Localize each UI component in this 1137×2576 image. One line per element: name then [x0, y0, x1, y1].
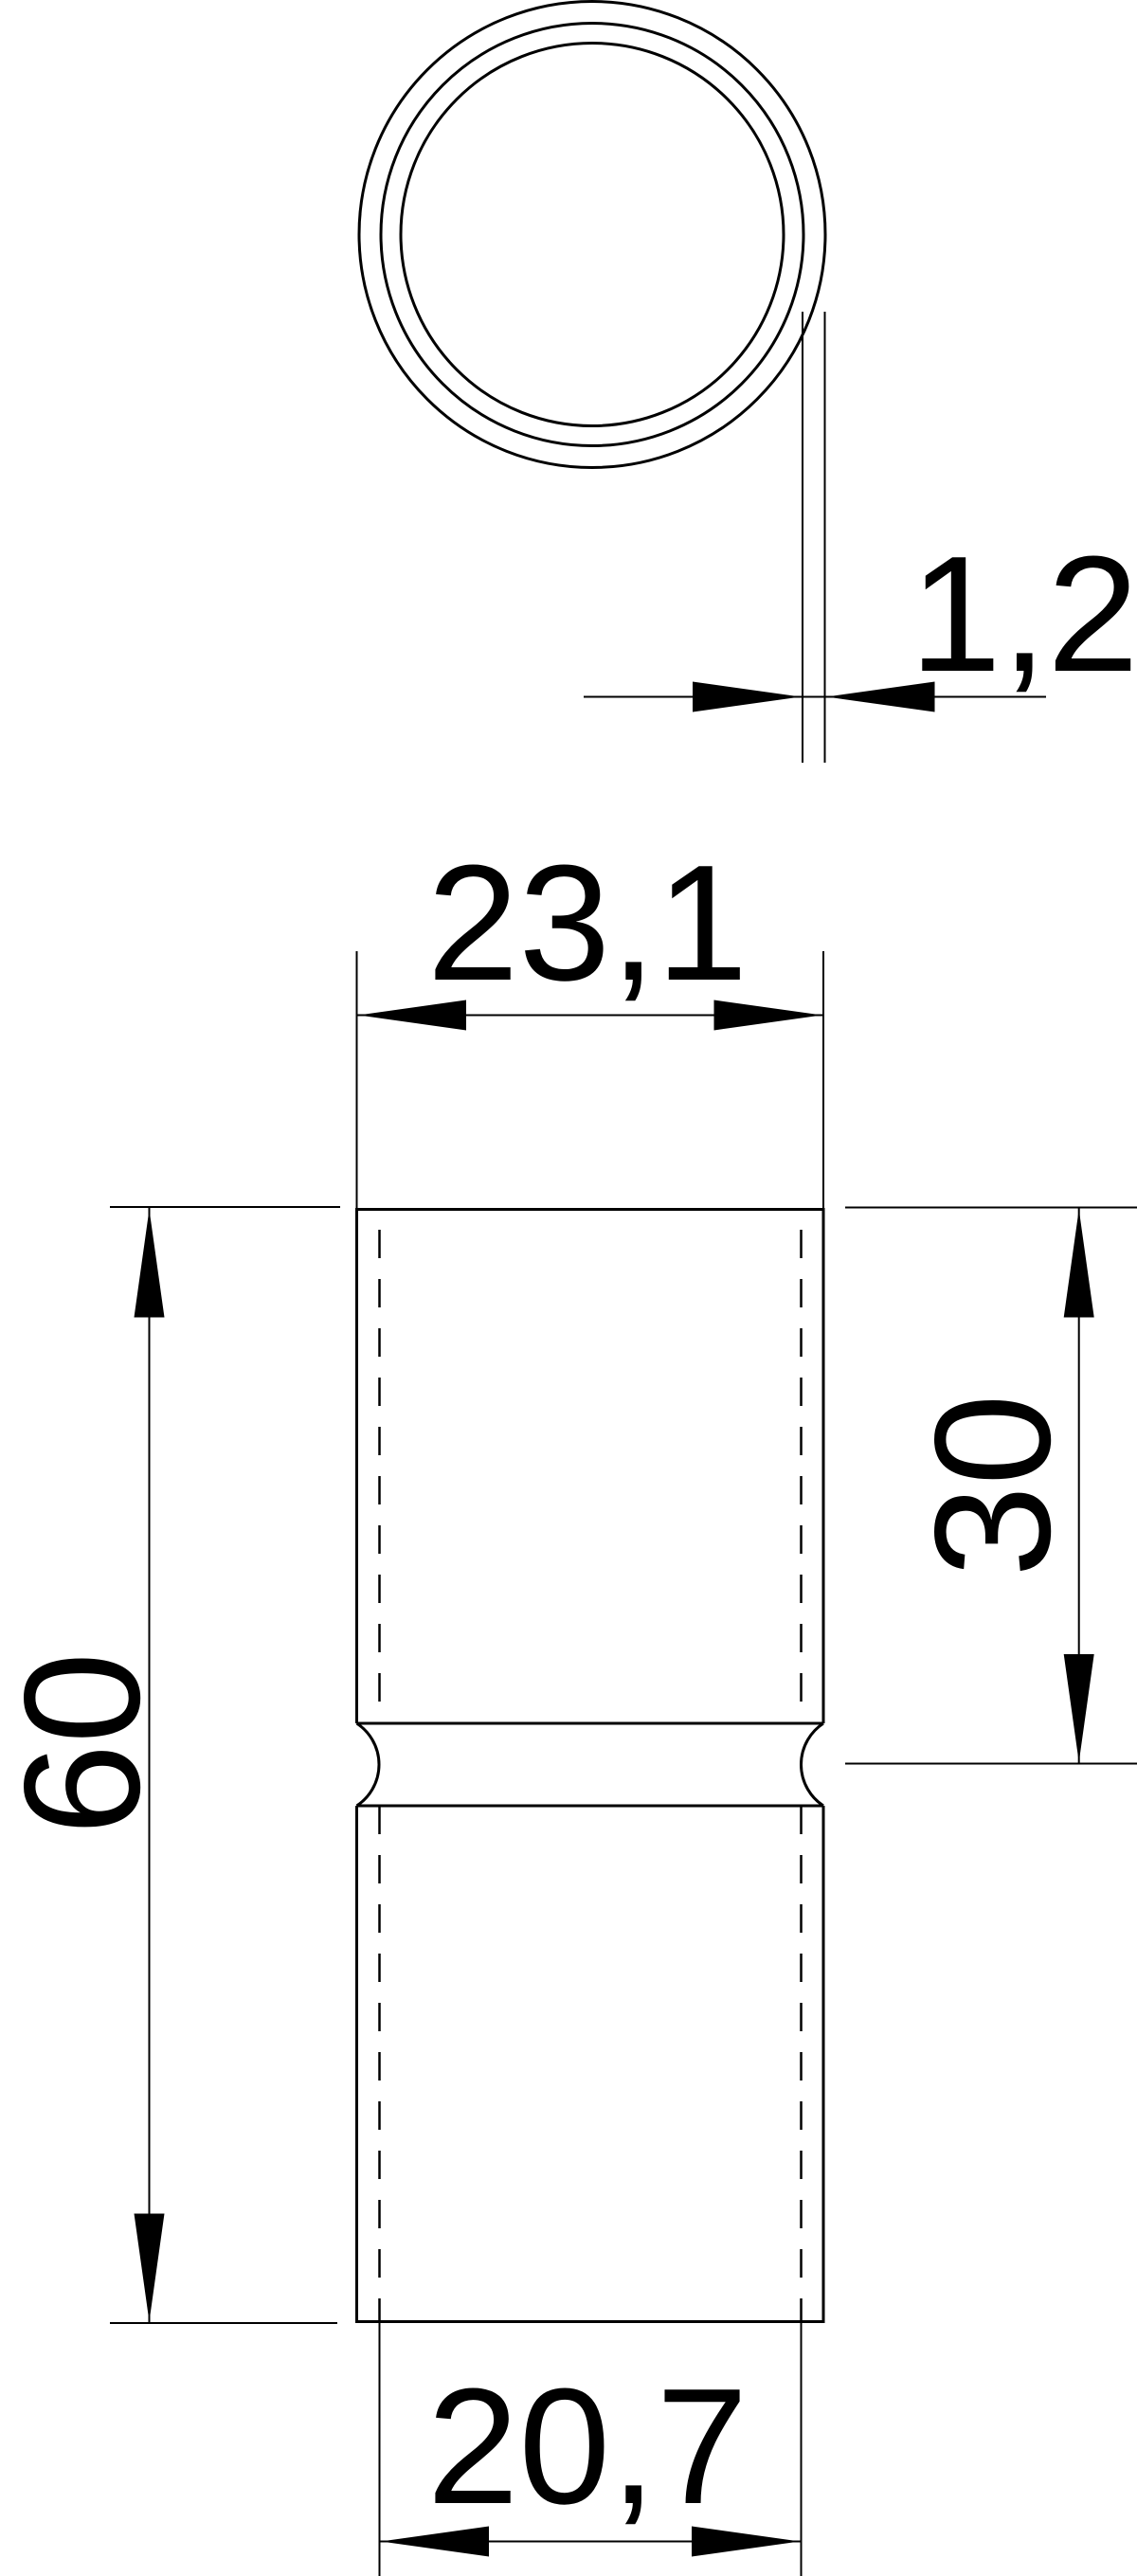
svg-text:23,1: 23,1: [427, 830, 749, 1015]
svg-text:30: 30: [900, 1394, 1085, 1577]
svg-text:1,2: 1,2: [910, 521, 1137, 706]
svg-text:20,7: 20,7: [427, 2353, 749, 2538]
svg-text:60: 60: [0, 1652, 174, 1836]
